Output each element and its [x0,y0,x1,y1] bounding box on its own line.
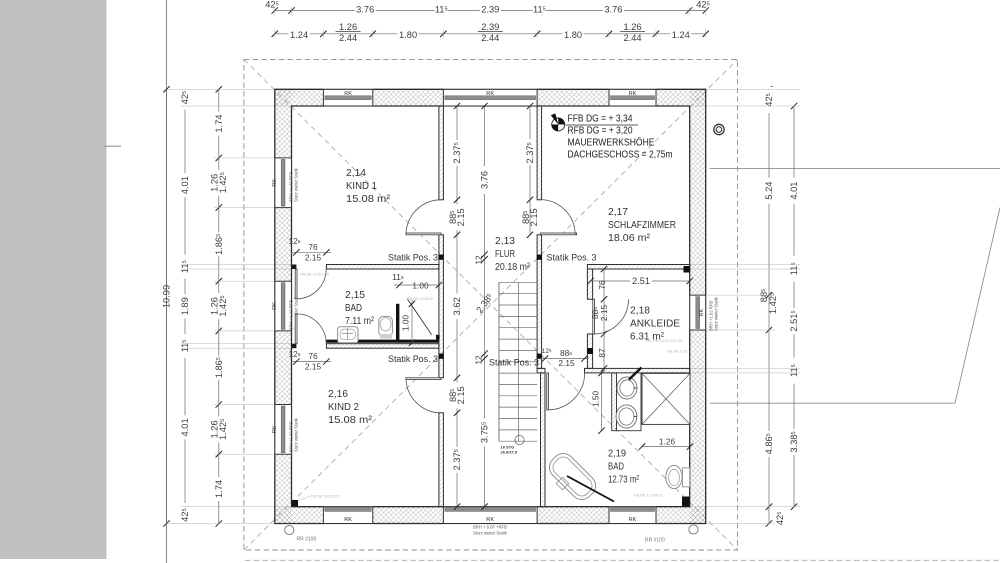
svg-text:FB.0B 12,5: FB.0B 12,5 [667,349,688,354]
svg-text:1.00: 1.00 [401,315,411,332]
svg-text:2,18: 2,18 [630,305,650,317]
svg-text:76: 76 [597,280,607,290]
svg-text:1.26: 1.26 [623,22,641,32]
svg-text:0B. FB 13,5/13,5 2B: 0B. FB 13,5/13,5 2B [646,338,682,343]
svg-text:2,13: 2,13 [495,235,515,247]
svg-text:1.89: 1.89 [180,297,190,315]
svg-text:Statik Pos. 3: Statik Pos. 3 [547,252,597,262]
svg-text:1.80: 1.80 [564,30,582,40]
svg-text:RK: RK [344,517,352,523]
svg-text:20.18 m²: 20.18 m² [495,261,530,273]
svg-text:1.26: 1.26 [659,436,676,446]
svg-text:KIND 1: KIND 1 [346,180,377,192]
svg-text:Sturz weiter Statik: Sturz weiter Statik [714,296,719,331]
svg-text:RR #100: RR #100 [645,538,665,544]
svg-text:76: 76 [308,242,318,252]
svg-text:2.51: 2.51 [632,276,650,286]
svg-text:2.15: 2.15 [456,386,466,404]
svg-text:ANKLEIDE: ANKLEIDE [630,318,680,330]
svg-text:1.74: 1.74 [214,115,224,133]
svg-text:Statik Pos. 3: Statik Pos. 3 [388,252,438,262]
svg-text:12: 12 [473,255,483,265]
svg-text:4.01: 4.01 [789,182,799,200]
svg-text:RK: RK [272,302,278,310]
svg-text:3.76: 3.76 [480,171,490,189]
svg-text:1.425: 1.425 [218,419,228,440]
svg-text:1.425: 1.425 [218,172,228,193]
svg-text:RK: RK [486,91,494,97]
svg-text:2.515: 2.515 [789,310,799,331]
svg-text:3.76: 3.76 [356,5,374,15]
svg-text:RK: RK [272,425,278,433]
svg-text:1.24: 1.24 [672,30,690,40]
svg-text:Sturz weiter Statik: Sturz weiter Statik [294,167,299,202]
svg-text:Statik Pos. 3: Statik Pos. 3 [489,358,539,368]
svg-text:1.50: 1.50 [591,391,601,408]
svg-text:3.755: 3.755 [480,422,490,443]
svg-text:2.15: 2.15 [305,252,322,262]
svg-text:2,14: 2,14 [346,167,366,179]
svg-text:1.74: 1.74 [214,480,224,498]
svg-text:10.99: 10.99 [162,285,172,308]
svg-text:1.425: 1.425 [768,293,778,314]
svg-text:FFB DG = + 3,34: FFB DG = + 3,34 [568,114,633,125]
svg-text:2.15: 2.15 [599,305,609,322]
svg-text:4.01: 4.01 [180,418,190,436]
svg-text:76: 76 [308,351,318,361]
svg-text:5.24: 5.24 [764,182,774,200]
svg-text:2.15: 2.15 [305,362,322,372]
svg-text:4.865: 4.865 [764,433,774,454]
svg-text:FB.0B 13,5/13,5: FB.0B 13,5/13,5 [311,494,341,499]
svg-text:2.44: 2.44 [339,33,357,43]
svg-text:RK: RK [272,179,278,187]
svg-text:2.15: 2.15 [529,208,539,226]
svg-text:87: 87 [597,348,607,358]
svg-text:2.44: 2.44 [481,33,499,43]
svg-text:2.15: 2.15 [558,358,575,368]
svg-text:12.73 m²: 12.73 m² [608,474,639,486]
svg-text:BRH + 0.87 +RFB: BRH + 0.87 +RFB [473,525,507,530]
svg-text:2.39: 2.39 [481,5,499,15]
svg-text:4.01: 4.01 [180,176,190,194]
svg-text:2.375: 2.375 [452,142,462,163]
svg-text:KIND 2: KIND 2 [328,401,359,413]
svg-text:2,19: 2,19 [608,448,626,460]
svg-text:3.385: 3.385 [789,431,799,452]
svg-text:3.76: 3.76 [604,5,622,15]
svg-text:RR #100: RR #100 [297,537,317,543]
svg-text:RK: RK [486,517,494,523]
svg-text:15.08 m²: 15.08 m² [346,193,391,205]
svg-text:1.865: 1.865 [214,357,224,378]
svg-text:Sturz weiter Statik: Sturz weiter Statik [473,531,508,536]
svg-text:DACHGESCHOSS = 2,75m: DACHGESCHOSS = 2,75m [568,150,673,161]
svg-text:15.08 m²: 15.08 m² [328,414,373,426]
svg-text:RK: RK [629,517,637,523]
svg-text:BAD: BAD [608,461,624,473]
svg-text:1.80: 1.80 [399,30,417,40]
svg-text:2.375: 2.375 [452,449,462,470]
svg-text:1.865: 1.865 [214,234,224,255]
svg-text:SCHLAFZIMMER: SCHLAFZIMMER [608,219,676,231]
svg-text:BAD: BAD [345,302,362,314]
svg-text:RK: RK [344,91,352,97]
svg-text:7.11 m²: 7.11 m² [345,315,374,327]
svg-text:2,15: 2,15 [345,289,365,301]
svg-text:FB.0B 13,5/13,5: FB.0B 13,5/13,5 [300,272,330,277]
svg-text:18.06 m²: 18.06 m² [608,232,651,244]
svg-text:RK: RK [699,308,705,316]
svg-text:Statik Pos. 3: Statik Pos. 3 [388,354,438,364]
svg-text:12: 12 [473,355,483,365]
svg-text:1.26: 1.26 [339,22,357,32]
svg-text:Sturz weiter Statik: Sturz weiter Statik [294,417,299,452]
svg-text:2.44: 2.44 [623,33,641,43]
svg-text:2.375: 2.375 [525,142,535,163]
svg-text:FB.0B 12,5/28: FB.0B 12,5/28 [407,296,433,301]
svg-text:FB.0B 12,5/42,5: FB.0B 12,5/42,5 [634,493,664,498]
svg-text:RK: RK [629,91,637,97]
svg-text:RFB DG = + 3,20: RFB DG = + 3,20 [568,126,633,137]
svg-text:3.62: 3.62 [452,297,462,315]
svg-text:FLUR: FLUR [495,248,515,260]
svg-text:2,17: 2,17 [608,206,628,218]
svg-text:1.00: 1.00 [412,280,429,290]
svg-text:MAUERWERKSHÖHE: MAUERWERKSHÖHE [568,138,655,149]
svg-text:26.6/27.8: 26.6/27.8 [501,450,518,455]
svg-text:2.39: 2.39 [481,22,499,32]
svg-text:1.425: 1.425 [218,295,228,316]
svg-text:2.15: 2.15 [456,208,466,226]
svg-text:1.24: 1.24 [290,30,308,40]
svg-text:2,16: 2,16 [328,388,348,400]
